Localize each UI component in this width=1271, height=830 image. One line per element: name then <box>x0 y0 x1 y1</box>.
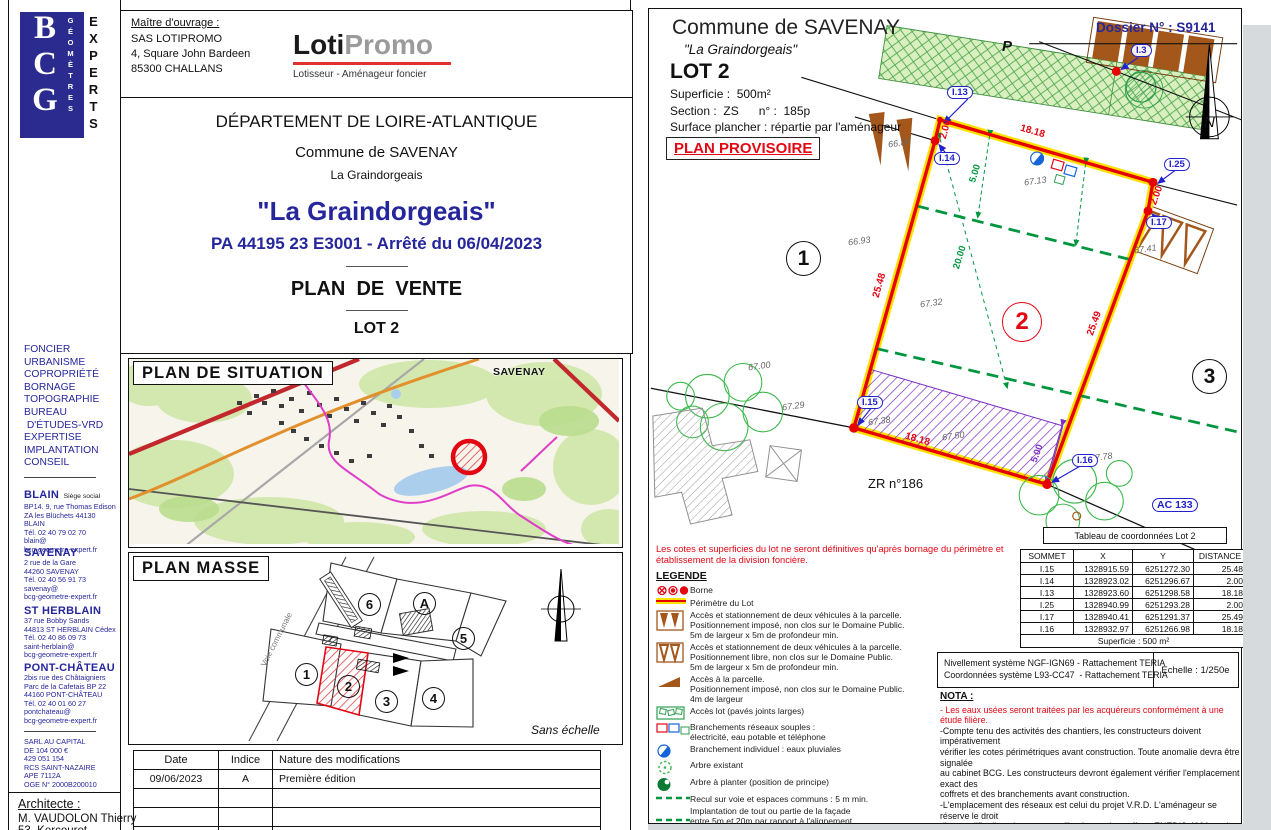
legend-line: Branchements réseaux souples : <box>690 722 826 732</box>
service-item: CONSEIL <box>24 457 103 470</box>
architect-divider <box>8 792 120 793</box>
mods-empty-cell <box>273 789 601 808</box>
doc-type-title: PLAN DE VENTE <box>121 278 632 301</box>
coordinates-table: SOMMET X Y DISTANCE I.151328915.59625127… <box>1020 549 1247 648</box>
coords-cell: 25.48 <box>1194 563 1247 575</box>
mods-cell-indice: A <box>219 770 273 789</box>
nota-line: coffrets et des branchements avant const… <box>940 789 1240 800</box>
acces-lot-icon <box>656 706 690 720</box>
legend-borne-label: Borne <box>690 585 713 595</box>
divider <box>24 477 96 478</box>
commune-title: Commune de SAVENAY <box>121 144 632 161</box>
nota-red-line: - Les eaux usées seront traitées par les… <box>940 705 1240 726</box>
service-item: BUREAU <box>24 407 103 420</box>
rp-surface-plancher: Surface plancher : répartie par l'aménag… <box>670 120 901 134</box>
lotipromo-logo-loti: Loti <box>293 29 344 60</box>
masse-lot-A: A <box>413 592 436 615</box>
architect-label: Architecte : <box>18 797 136 811</box>
coords-cell: 1328940.99 <box>1074 599 1133 611</box>
rp-place-title: "La Graindorgeais" <box>684 42 797 57</box>
divider <box>346 266 408 267</box>
nota-block: NOTA : - Les eaux usées seront traitées … <box>940 692 1240 830</box>
office-line: bcg-geometre-expert.fr <box>24 717 120 726</box>
legend-line: électricité, eau potable et téléphone <box>690 732 826 742</box>
plan-lot-3: 3 <box>1192 359 1227 394</box>
point-label-I25: I.25 <box>1164 158 1190 171</box>
borne-icon <box>656 585 690 596</box>
coords-caption: Tableau de coordonnées Lot 2 <box>1043 527 1227 544</box>
nota-line: -Compte tenu des activités des chantiers… <box>940 726 1240 747</box>
branchements-icon <box>656 722 690 738</box>
coords-cell: 18.18 <box>1194 587 1247 599</box>
office-savenay: SAVENAY 2 rue de la Gare 44260 SAVENAY T… <box>24 547 118 602</box>
mods-empty-cell <box>219 808 273 827</box>
recul-dash-icon <box>656 794 690 802</box>
masse-lot-2: 2 <box>337 675 360 698</box>
service-item: EXPERTISE <box>24 432 103 445</box>
point-label-I15: I.15 <box>857 396 883 409</box>
coords-cell: I.25 <box>1021 599 1074 611</box>
services-list: FONCIER URBANISME COPROPRIÉTÉ BORNAGE TO… <box>24 344 103 470</box>
plan-lot-2: 2 <box>1002 302 1042 342</box>
coords-cell: I.15 <box>1021 563 1074 575</box>
legend-title: LEGENDE <box>656 570 938 582</box>
rp-superficie: Superficie : 500m² <box>670 87 771 101</box>
situation-map-frame: PLAN DE SITUATION SAVENAY <box>128 358 623 548</box>
mods-header-nature: Nature des modifications <box>273 751 601 770</box>
architect-block: Architecte : M. VAUDOLON Thierry 53, Ker… <box>18 797 136 830</box>
mods-empty-cell <box>273 808 601 827</box>
coords-cell: I.13 <box>1021 587 1074 599</box>
acces-impose-icon <box>656 610 690 632</box>
coords-cell: I.16 <box>1021 623 1074 635</box>
coords-cell: 6251266.98 <box>1133 623 1194 635</box>
legend-line: Accès et stationnement de deux véhicules… <box>690 642 902 652</box>
masse-lot-4: 4 <box>422 687 445 710</box>
arbre-existant-icon <box>656 760 690 775</box>
legend-arbre-planter-label: Arbre à planter (position de principe) <box>690 777 829 787</box>
mods-header-date: Date <box>134 751 219 770</box>
legend: LEGENDE Borne Périmètre du Lot Accès et … <box>656 570 938 830</box>
company-line: OGE N° 2000B200010 <box>24 781 97 790</box>
project-title: "La Graindorgeais" <box>121 196 632 227</box>
bcg-logo: BCG GÉOMÈTRES EXPERTS <box>18 10 118 142</box>
nota-line: vérifier les cotes périmétriques avant c… <box>940 747 1240 768</box>
bcg-experts-label: EXPERTS <box>86 14 101 138</box>
arbre-planter-icon <box>656 777 690 792</box>
plan-lot-1: 1 <box>786 241 821 276</box>
coords-cell: 25.49 <box>1194 611 1247 623</box>
office-note: Siège social <box>64 493 101 500</box>
legend-arbre-existant-label: Arbre existant <box>690 760 743 770</box>
bornage-note: Les cotes et superficies du lot ne seron… <box>656 544 1004 566</box>
masse-lot-6: 6 <box>358 593 381 616</box>
coords-cell: 2.00 <box>1194 599 1247 611</box>
legend-line: Accès et stationnement de deux véhicules… <box>690 610 904 620</box>
dossier-number: Dossier N° : S9141 <box>1096 20 1215 35</box>
lotipromo-logo: LotiPromo Lotisseur - Aménageur foncier <box>293 29 451 80</box>
point-label-I13: I.13 <box>947 86 973 99</box>
legend-line: 4m de largeur <box>690 694 904 704</box>
owner-header-box: Maître d'ouvrage : SAS LOTIPROMO 4, Squa… <box>120 10 633 99</box>
office-name: BLAIN <box>24 489 59 501</box>
coords-header: SOMMET <box>1021 550 1074 563</box>
masse-title-tag: PLAN MASSE <box>133 556 269 581</box>
coords-header: DISTANCE <box>1194 550 1247 563</box>
coords-cell: 6251296.67 <box>1133 575 1194 587</box>
masse-north-compass-icon <box>541 569 581 641</box>
point-label-I17: I.17 <box>1146 216 1172 229</box>
legend-line: 5m de largeur x 5m de profondeur min. <box>690 662 902 672</box>
situation-title-tag: PLAN DE SITUATION <box>133 361 333 385</box>
mods-empty-cell <box>134 789 219 808</box>
company-registration: SARL AU CAPITAL DE 104 000 € 429 051 154… <box>24 738 97 790</box>
divider <box>346 310 408 311</box>
existing-building <box>653 408 758 524</box>
mods-empty-cell <box>219 827 273 830</box>
nota-line: -L'emplacement des réseaux est celui du … <box>940 800 1240 821</box>
rp-section: Section : ZS n° : 185p <box>670 104 810 118</box>
coords-cell: 6251298.58 <box>1133 587 1194 599</box>
owner-address-1: 4, Square John Bardeen <box>131 48 250 60</box>
title-block: DÉPARTEMENT DE LOIRE-ATLANTIQUE Commune … <box>120 97 633 354</box>
office-blain: BLAIN Siège social BP14. 9, rue Thomas E… <box>24 485 118 555</box>
coords-cell: 18.18 <box>1194 623 1247 635</box>
coords-cell: 1328923.02 <box>1074 575 1133 587</box>
masse-scale-note: Sans échelle <box>531 723 600 737</box>
coords-cell: I.14 <box>1021 575 1074 587</box>
left-page-left-border <box>8 0 9 830</box>
modifications-table: Date Indice Nature des modifications 09/… <box>133 750 601 830</box>
coords-cell: 1328932.97 <box>1074 623 1133 635</box>
bcg-logo-letters: BCG <box>22 10 68 136</box>
owner-name: SAS LOTIPROMO <box>131 33 222 45</box>
legend-line: 5m de largeur x 5m de profondeur min. <box>690 630 904 640</box>
bornage-note-line: établissement de la division foncière. <box>656 555 1004 566</box>
owner-label: Maître d'ouvrage : <box>131 17 219 29</box>
coords-cell: 6251293.28 <box>1133 599 1194 611</box>
eaux-pluviales-icon <box>656 744 690 758</box>
mods-header-indice: Indice <box>219 751 273 770</box>
implantation-dash-icon <box>656 816 690 824</box>
page-outside-right <box>1243 25 1271 830</box>
service-item: URBANISME <box>24 357 103 370</box>
nota-title: NOTA : <box>940 692 1240 703</box>
masse-plan <box>129 553 619 741</box>
legend-acces-lot-label: Accès lot (pavés joints larges) <box>690 706 804 716</box>
coords-cell: 2.00 <box>1194 575 1247 587</box>
office-line: bcg-geometre-expert.fr <box>24 593 118 602</box>
coords-header: X <box>1074 550 1133 563</box>
divider <box>24 731 96 732</box>
lotipromo-logo-underline <box>293 62 451 65</box>
departement-title: DÉPARTEMENT DE LOIRE-ATLANTIQUE <box>121 112 632 132</box>
mods-empty-cell <box>134 808 219 827</box>
lotipromo-logo-promo: Promo <box>344 29 433 60</box>
parcel-zr-label: ZR n°186 <box>868 476 923 491</box>
service-item: FONCIER <box>24 344 103 357</box>
point-label-I3: I.3 <box>1131 44 1152 57</box>
page-outside-bottom <box>648 824 1243 830</box>
situation-map <box>129 359 619 544</box>
coords-cell: 6251291.37 <box>1133 611 1194 623</box>
legend-perimetre-label: Périmètre du Lot <box>690 598 754 608</box>
masse-plan-frame: PLAN MASSE 1 2 3 4 5 6 A Voie communale … <box>128 552 623 745</box>
masse-lot-3: 3 <box>375 690 398 713</box>
masse-lot-5: 5 <box>452 627 475 650</box>
service-item: TOPOGRAPHIE <box>24 394 103 407</box>
mods-empty-cell <box>273 827 601 830</box>
lotipromo-tagline: Lotisseur - Aménageur foncier <box>293 69 451 80</box>
legend-line: Positionnement imposé, non clos sur le D… <box>690 684 904 694</box>
situation-town-label: SAVENAY <box>493 366 546 378</box>
lot-title: LOT 2 <box>121 320 632 338</box>
rp-commune-title: Commune de SAVENAY <box>672 16 900 40</box>
plan-de-vente-document: BCG GÉOMÈTRES EXPERTS Maître d'ouvrage :… <box>0 0 1271 830</box>
coords-header: Y <box>1133 550 1194 563</box>
office-line: bcg-geometre-expert.fr <box>24 651 120 660</box>
office-st-herblain: ST HERBLAIN 37 rue Bobby Sands 44813 ST … <box>24 605 120 660</box>
bornage-note-line: Les cotes et superficies du lot ne seron… <box>656 544 1004 555</box>
ref-line-nivellement: Nivellement système NGF-IGN69 - Rattache… <box>944 657 1168 669</box>
legend-recul-label: Recul sur voie et espaces communs : 5 m … <box>690 794 868 804</box>
parcel-p-label: P <box>1002 38 1012 55</box>
legend-line: Accès à la parcelle. <box>690 674 904 684</box>
parcel-ac-label: AC 133 <box>1152 498 1198 512</box>
acces-parcelle-icon <box>656 674 690 690</box>
legend-implantation-line1: Implantation de tout ou partie de la faç… <box>690 806 851 816</box>
service-item: BORNAGE <box>24 382 103 395</box>
rp-lot-title: LOT 2 <box>670 60 730 84</box>
point-label-I14: I.14 <box>934 152 960 165</box>
site-marker-icon <box>453 441 485 473</box>
legend-line: Positionnement imposé, non clos sur le D… <box>690 620 904 630</box>
reference-box: Nivellement système NGF-IGN69 - Rattache… <box>937 652 1239 688</box>
masse-lot-1: 1 <box>295 663 318 686</box>
point-label-I16: I.16 <box>1072 454 1098 467</box>
mods-empty-cell <box>134 827 219 830</box>
legend-eaux-pluviales-label: Branchement individuel : eaux pluviales <box>690 744 841 754</box>
nota-line: au cabinet BCG. Les constructeurs devron… <box>940 768 1240 789</box>
bcg-geometres-label: GÉOMÈTRES <box>66 16 75 134</box>
coords-cell: 1328923.60 <box>1074 587 1133 599</box>
acces-libre-icon <box>656 642 690 664</box>
office-line: ZA les Blüchets 44130 BLAIN <box>24 512 118 529</box>
plan-provisoire-stamp: PLAN PROVISOIRE <box>666 137 820 160</box>
service-item: D'ÉTUDES-VRD <box>24 420 103 433</box>
perimetre-icon <box>656 598 690 604</box>
owner-address-2: 85300 CHALLANS <box>131 63 223 75</box>
coords-cell: 6251272.30 <box>1133 563 1194 575</box>
mods-cell-nature: Première édition <box>273 770 601 789</box>
coords-cell: 1328940.41 <box>1074 611 1133 623</box>
coords-cell: I.17 <box>1021 611 1074 623</box>
legend-line: Positionnement libre, non clos sur le Do… <box>690 652 902 662</box>
permit-number: PA 44195 23 E3001 - Arrêté du 06/04/2023 <box>121 234 632 254</box>
mods-empty-cell <box>219 789 273 808</box>
coords-footer: Superficie : 500 m² <box>1021 635 1247 648</box>
architect-name: M. VAUDOLON Thierry <box>18 813 136 825</box>
office-pont-chateau: PONT-CHÂTEAU 2bis rue des Châtaigniers P… <box>24 662 120 726</box>
place-title: La Graindorgeais <box>121 168 632 182</box>
mods-cell-date: 09/06/2023 <box>134 770 219 789</box>
architect-address: 53, Kercouret <box>18 825 136 830</box>
scale-label: Echelle : 1/250e <box>1153 653 1238 687</box>
coords-cell: 1328915.59 <box>1074 563 1133 575</box>
service-item: COPROPRIÉTÉ <box>24 369 103 382</box>
north-letter: N <box>1204 114 1215 131</box>
service-item: IMPLANTATION <box>24 445 103 458</box>
ref-line-coordonnees: Coordonnées système L93-CC47 - Rattachem… <box>944 669 1168 681</box>
